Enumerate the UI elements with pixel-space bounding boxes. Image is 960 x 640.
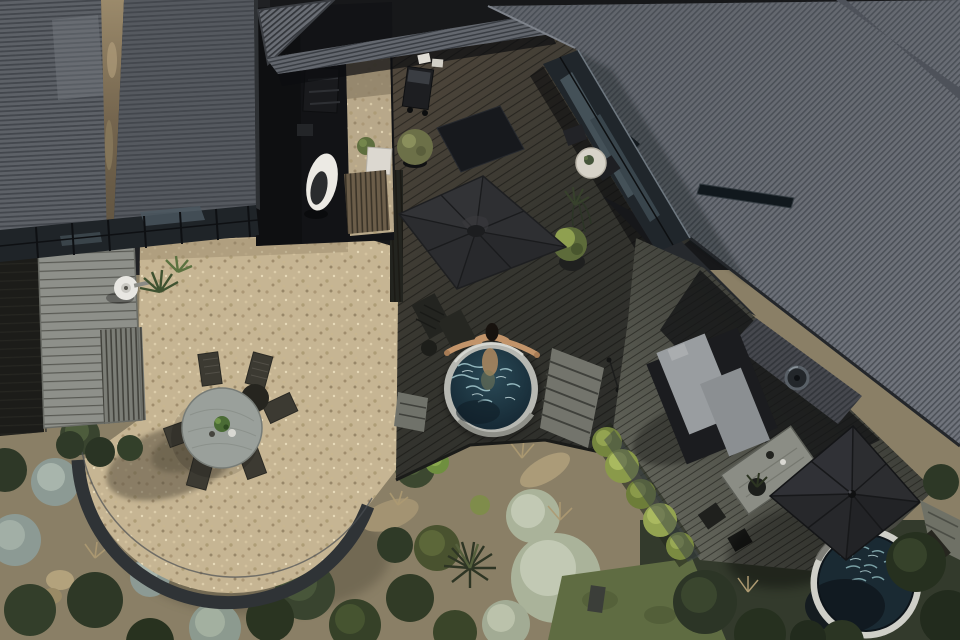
aerial-photo	[0, 0, 960, 640]
deck-stair-small	[394, 392, 428, 432]
pillow-white	[432, 59, 444, 68]
chimney-flue	[786, 367, 808, 389]
table-centerpiece	[214, 416, 230, 432]
swimmer-head	[486, 323, 499, 341]
white-cabinet	[366, 147, 392, 175]
corrugated-roof-left	[0, 0, 260, 262]
